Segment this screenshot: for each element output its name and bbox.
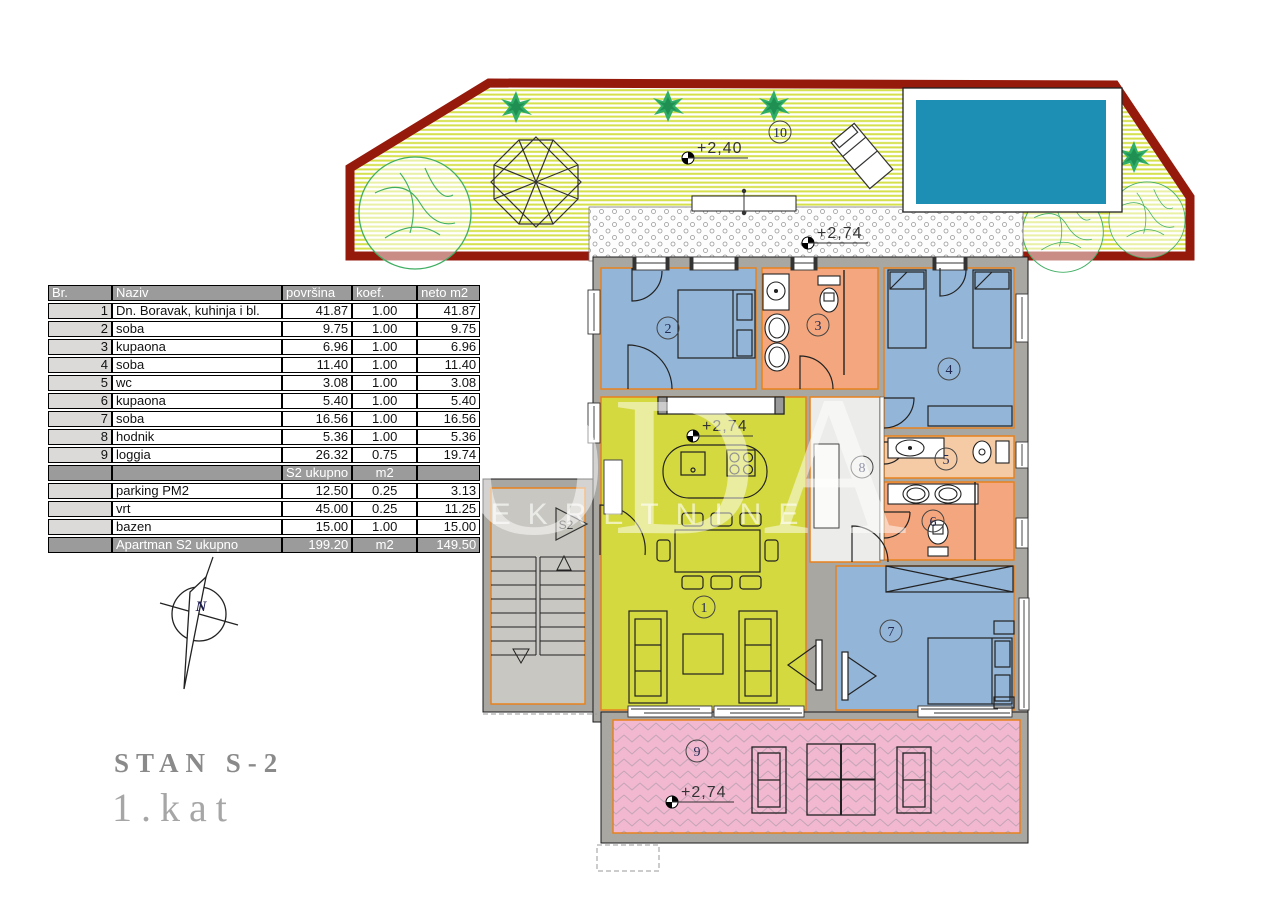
column-header: koef. [352,285,417,301]
table-cell: 19.74 [417,447,480,463]
window [1016,442,1028,468]
table-cell: vrt [112,501,282,517]
table-cell: 15.00 [282,519,352,535]
table-header-row: Br. Naziv površina koef. neto m2 [48,285,480,301]
table-cell: 1 [48,303,112,319]
table-cell: 16.56 [282,411,352,427]
table-cell: soba [112,321,282,337]
table-cell: 1.00 [352,339,417,355]
svg-text:2: 2 [665,322,672,337]
floorplan-page: S2 +2,40 +2,74 +2,74 +2,74 1 2 3 4 5 [0,0,1275,897]
table-total-row: Apartman S2 ukupno199.20m2149.50 [48,537,480,553]
dashed-outline [597,845,659,871]
table-cell: 5.36 [282,429,352,445]
compass-needle [184,577,206,689]
level-label: +2,74 [817,225,862,242]
entrance-label: S2 [559,518,574,532]
window [588,403,600,443]
table-cell: 0.75 [352,447,417,463]
table-cell: 9 [48,447,112,463]
plan-subtitle: 1.kat [112,784,236,831]
table-cell: 1.00 [352,393,417,409]
pool [903,88,1122,212]
column-header: neto m2 [417,285,480,301]
table-cell: wc [112,375,282,391]
table-cell: 41.87 [417,303,480,319]
svg-text:10: 10 [773,126,787,141]
svg-text:7: 7 [888,625,895,640]
table-cell [48,483,112,499]
table-cell [112,465,282,481]
svg-text:3: 3 [815,319,822,334]
table-cell: 12.50 [282,483,352,499]
table-cell: 16.56 [417,411,480,427]
window [690,257,738,270]
kitchen-counter [658,397,784,414]
table-cell: hodnik [112,429,282,445]
cistern [996,441,1009,463]
table-cell: 8 [48,429,112,445]
window [1016,518,1028,548]
table-cell: 9.75 [417,321,480,337]
level-label: +2,74 [681,784,726,801]
table-cell: 1.00 [352,375,417,391]
table-cell: 149.50 [417,537,480,553]
table-cell: 1.00 [352,519,417,535]
table-cell: 199.20 [282,537,352,553]
column-header: Br. [48,285,112,301]
table-cell: 4 [48,357,112,373]
deciduous-tree [359,157,471,269]
north-label: N [195,599,208,615]
table-cell: 5.40 [417,393,480,409]
room-1-living [601,397,806,710]
table-cell: 5 [48,375,112,391]
hall-closet [814,444,839,528]
table-cell: 1.00 [352,357,417,373]
table-row: 9loggia26.320.7519.74 [48,447,480,463]
window [1016,294,1028,342]
column-header: Naziv [112,285,282,301]
area-table: Br. Naziv površina koef. neto m2 1Dn. Bo… [48,283,480,555]
table-cell [48,519,112,535]
table-row: 2soba9.751.009.75 [48,321,480,337]
level-label: +2,74 [702,418,747,435]
tv [816,640,822,690]
cistern [928,547,948,556]
table-cell: 11.40 [417,357,480,373]
table-row: 3kupaona6.961.006.96 [48,339,480,355]
table-cell: S2 ukupno [282,465,352,481]
table-cell: 3.08 [282,375,352,391]
table-cell: 41.87 [282,303,352,319]
table-cell: 6 [48,393,112,409]
table-cell: 9.75 [282,321,352,337]
table-cell: Apartman S2 ukupno [112,537,282,553]
table-cell: 1.00 [352,321,417,337]
window [588,290,600,334]
table-cell: loggia [112,447,282,463]
table-cell: 2 [48,321,112,337]
window-wall [1019,598,1029,710]
table-cell: 45.00 [282,501,352,517]
wall-strip [880,397,884,560]
table-cell: 5.36 [417,429,480,445]
cistern [818,276,840,285]
table-cell: 5.40 [282,393,352,409]
table-cell [48,465,112,481]
table-cell: 1.00 [352,411,417,427]
table-cell: 6.96 [417,339,480,355]
table-cell: 0.25 [352,483,417,499]
sliding-door [628,706,712,717]
table-row: 6kupaona5.401.005.40 [48,393,480,409]
table-cell: m2 [352,537,417,553]
table-row: 1Dn. Boravak, kuhinja i bl.41.871.0041.8… [48,303,480,319]
svg-text:4: 4 [946,363,953,378]
table-cell [48,537,112,553]
table-row: 7soba16.561.0016.56 [48,411,480,427]
column-header: površina [282,285,352,301]
sliding-door [714,706,804,717]
svg-text:8: 8 [859,461,866,476]
double-vanity [888,484,978,504]
north-compass: N [160,557,238,689]
table-cell: 3.08 [417,375,480,391]
table-cell: 15.00 [417,519,480,535]
table-row: vrt45.000.2511.25 [48,501,480,517]
table-cell: 1.00 [352,303,417,319]
table-cell: Dn. Boravak, kuhinja i bl. [112,303,282,319]
svg-text:6: 6 [930,515,937,530]
table-row: 5wc3.081.003.08 [48,375,480,391]
table-cell: parking PM2 [112,483,282,499]
table-cell: 7 [48,411,112,427]
table-cell: 0.25 [352,501,417,517]
level-label: +2,40 [697,140,742,157]
window [791,257,817,270]
loggia-pattern [613,720,1020,833]
table-cell: 11.40 [282,357,352,373]
table-cell: 26.32 [282,447,352,463]
svg-text:9: 9 [694,745,701,760]
table-cell [417,465,480,481]
table-row: bazen15.001.0015.00 [48,519,480,535]
table-cell: 1.00 [352,429,417,445]
table-row: 8hodnik5.361.005.36 [48,429,480,445]
table-cell: 11.25 [417,501,480,517]
table-cell: kupaona [112,393,282,409]
window [633,257,669,270]
tv [842,652,848,700]
svg-text:5: 5 [943,453,950,468]
table-cell: soba [112,411,282,427]
table-cell: bazen [112,519,282,535]
table-cell: kupaona [112,339,282,355]
table-cell: 6.96 [282,339,352,355]
table-cell: 3 [48,339,112,355]
window [933,257,967,270]
table-cell [48,501,112,517]
table-subheader-row: S2 ukupnom2 [48,465,480,481]
svg-text:1: 1 [701,601,708,616]
table-row: 4soba11.401.0011.40 [48,357,480,373]
table-cell: m2 [352,465,417,481]
entry-cabinet [604,460,622,514]
table-cell: soba [112,357,282,373]
plan-title: STAN S-2 [114,748,284,779]
table-cell: 3.13 [417,483,480,499]
table-row: parking PM212.500.253.13 [48,483,480,499]
